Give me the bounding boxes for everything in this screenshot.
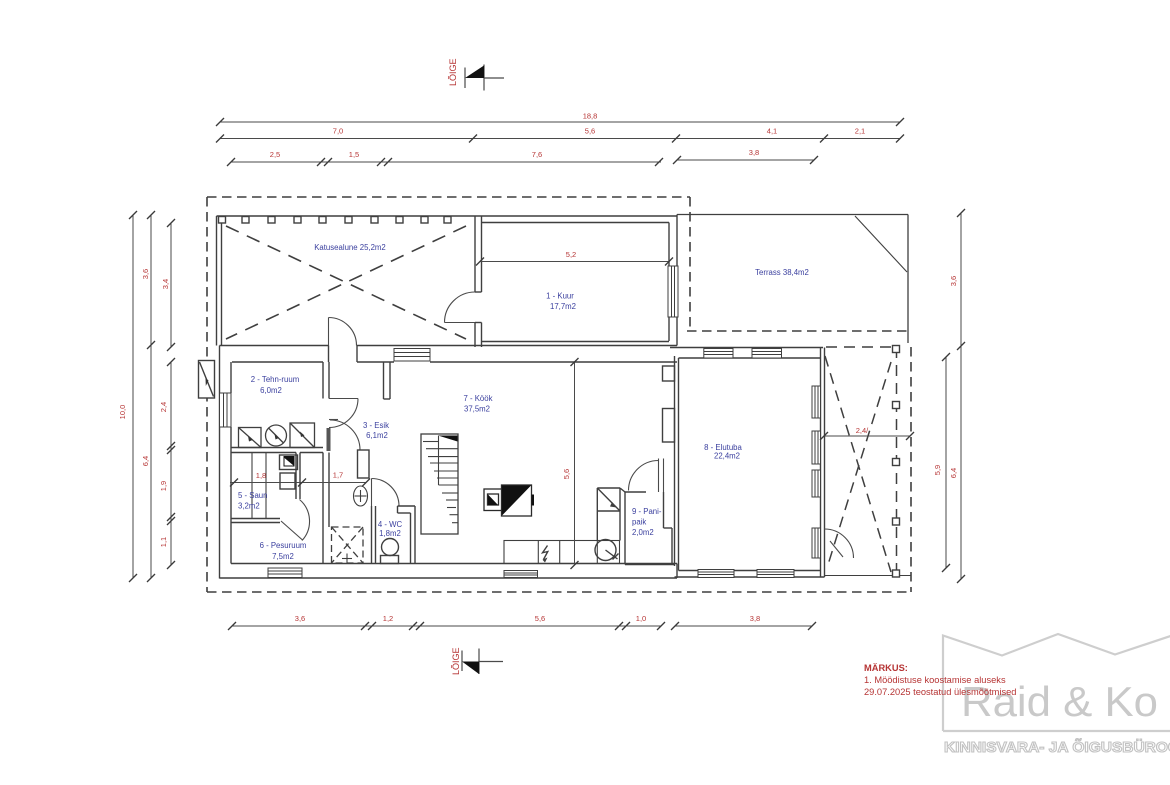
svg-text:6,1m2: 6,1m2 (366, 431, 388, 440)
svg-text:7,6: 7,6 (532, 150, 542, 159)
svg-text:4,1: 4,1 (767, 127, 777, 136)
svg-text:2,1: 2,1 (855, 127, 865, 136)
svg-text:3,6: 3,6 (141, 269, 150, 279)
svg-text:1,7: 1,7 (333, 471, 343, 480)
svg-text:2,0m2: 2,0m2 (632, 528, 654, 537)
svg-text:1,5: 1,5 (349, 150, 359, 159)
svg-text:6,4: 6,4 (949, 468, 958, 478)
svg-text:LÕIGE: LÕIGE (448, 58, 458, 86)
svg-text:29.07.2025 teostatud ülesmõõtm: 29.07.2025 teostatud ülesmõõtmised (864, 687, 1016, 697)
svg-text:5 - Saun: 5 - Saun (238, 491, 267, 500)
svg-text:3,6: 3,6 (949, 276, 958, 286)
svg-text:17,7m2: 17,7m2 (550, 302, 576, 311)
svg-text:7 - Köök: 7 - Köök (463, 394, 492, 403)
svg-text:5,6: 5,6 (585, 127, 595, 136)
svg-text:18,8: 18,8 (583, 112, 598, 121)
svg-text:10,0: 10,0 (118, 405, 127, 420)
svg-text:1. Möödistuse koostamise aluse: 1. Möödistuse koostamise aluseks (864, 675, 1006, 685)
svg-text:7,5m2: 7,5m2 (272, 552, 294, 561)
svg-text:6,0m2: 6,0m2 (260, 386, 282, 395)
svg-text:1,8: 1,8 (256, 471, 266, 480)
svg-text:3,8: 3,8 (750, 614, 760, 623)
svg-text:Katusealune 25,2m2: Katusealune 25,2m2 (314, 243, 386, 252)
svg-text:2,4: 2,4 (159, 402, 168, 412)
svg-text:Raid & Ko: Raid & Ko (961, 678, 1158, 725)
svg-text:9 - Pani-: 9 - Pani- (632, 507, 662, 516)
svg-text:5,2: 5,2 (566, 250, 576, 259)
svg-text:6,4: 6,4 (141, 456, 150, 466)
svg-text:MÄRKUS:: MÄRKUS: (864, 663, 908, 673)
svg-text:3 - Esik: 3 - Esik (363, 421, 389, 430)
svg-text:22,4m2: 22,4m2 (714, 452, 740, 461)
svg-text:1 - Kuur: 1 - Kuur (546, 292, 574, 301)
svg-text:5,6: 5,6 (535, 614, 545, 623)
svg-text:LÕIGE: LÕIGE (451, 647, 461, 675)
svg-text:37,5m2: 37,5m2 (464, 405, 490, 414)
svg-text:3,6: 3,6 (295, 614, 305, 623)
svg-text:1,2: 1,2 (383, 614, 393, 623)
svg-text:3,8: 3,8 (749, 148, 759, 157)
svg-text:paik: paik (632, 518, 646, 527)
svg-text:2,5: 2,5 (270, 150, 280, 159)
svg-text:Terrass 38,4m2: Terrass 38,4m2 (755, 268, 809, 277)
svg-text:2,4/: 2,4/ (856, 426, 869, 435)
svg-text:3,2m2: 3,2m2 (238, 502, 260, 511)
svg-text:2 - Tehn-ruum: 2 - Tehn-ruum (251, 375, 299, 384)
svg-text:4 - WC: 4 - WC (378, 520, 403, 529)
svg-text:5,6: 5,6 (562, 469, 571, 479)
svg-text:1,1: 1,1 (159, 537, 168, 547)
svg-text:7,0: 7,0 (333, 127, 343, 136)
svg-text:6 - Pesuruum: 6 - Pesuruum (260, 541, 307, 550)
svg-text:1,9: 1,9 (159, 481, 168, 491)
svg-text:5,9: 5,9 (933, 465, 942, 475)
svg-text:1,8m2: 1,8m2 (379, 529, 401, 538)
svg-text:KINNISVARA- JA ÕIGUSBÜROO: KINNISVARA- JA ÕIGUSBÜROO (944, 738, 1170, 756)
svg-text:3,4: 3,4 (161, 279, 170, 289)
svg-text:1,0: 1,0 (636, 614, 646, 623)
